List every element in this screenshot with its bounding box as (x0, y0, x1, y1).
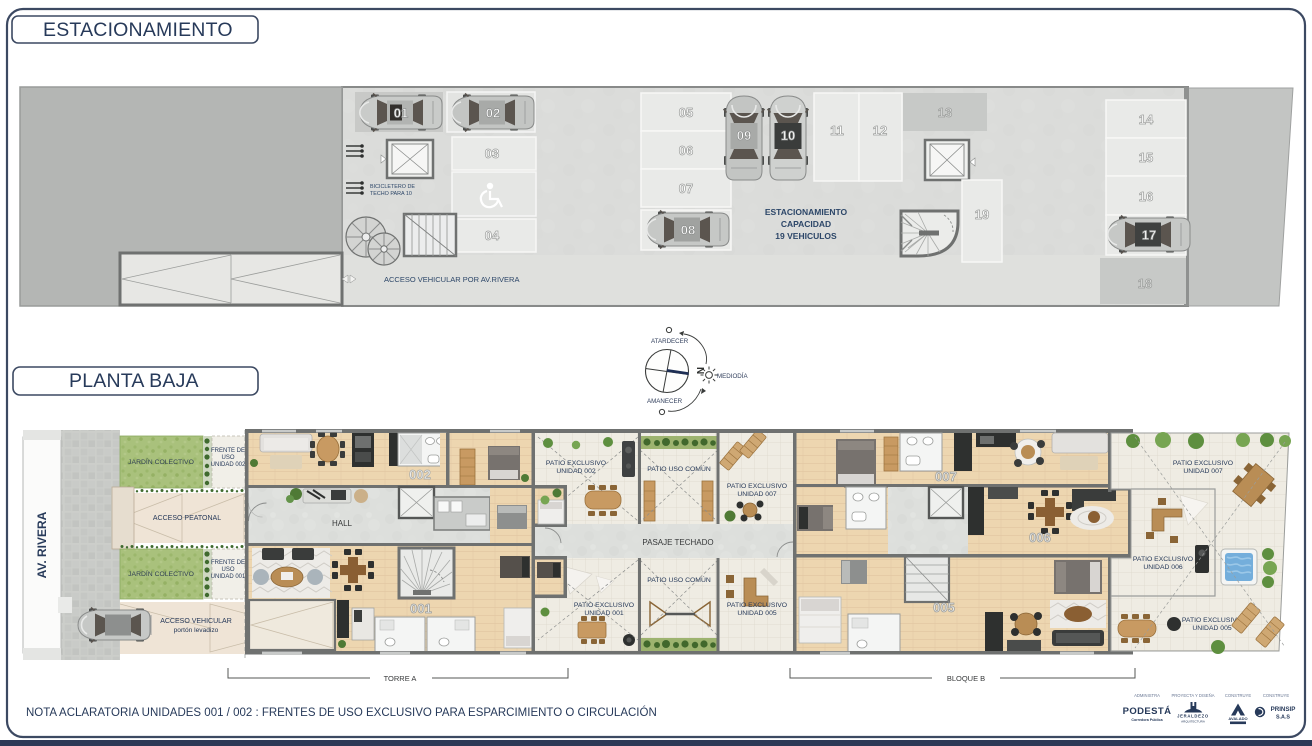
svg-text:ACCESO VEHICULAR: ACCESO VEHICULAR (160, 618, 232, 625)
svg-text:PASAJE TECHADO: PASAJE TECHADO (642, 538, 713, 547)
svg-text:19 VEHICULOS: 19 VEHICULOS (775, 231, 837, 241)
svg-text:UNIDAD 007: UNIDAD 007 (737, 491, 777, 498)
svg-text:AV. RIVERA: AV. RIVERA (35, 511, 49, 578)
svg-text:15: 15 (1139, 150, 1153, 165)
svg-text:BICICLETERO DE: BICICLETERO DE (370, 184, 415, 190)
svg-text:NOTA ACLARATORIA UNIDADES 001: NOTA ACLARATORIA UNIDADES 001 / 002 : FR… (26, 706, 657, 719)
svg-text:AMANECER: AMANECER (647, 398, 683, 405)
svg-text:ACCESO PEATONAL: ACCESO PEATONAL (153, 515, 221, 522)
svg-text:06: 06 (679, 143, 693, 158)
svg-text:PROYECTA Y DISEÑA: PROYECTA Y DISEÑA (1171, 693, 1214, 698)
svg-text:ATARDECER: ATARDECER (651, 338, 689, 345)
svg-text:JARDÍN COLECTIVO: JARDÍN COLECTIVO (128, 457, 194, 466)
svg-text:UNIDAD 007: UNIDAD 007 (1183, 468, 1223, 475)
svg-text:UNIDAD 001: UNIDAD 001 (584, 610, 624, 617)
svg-text:006: 006 (1029, 530, 1051, 545)
svg-text:07: 07 (679, 181, 693, 196)
svg-text:005: 005 (933, 600, 955, 615)
svg-text:ESTACIONAMIENTO: ESTACIONAMIENTO (765, 207, 848, 217)
svg-text:01: 01 (394, 106, 408, 121)
svg-text:001: 001 (410, 601, 432, 616)
svg-text:17: 17 (1142, 228, 1156, 243)
svg-text:16: 16 (1139, 189, 1153, 204)
svg-text:UNIDAD 001: UNIDAD 001 (211, 574, 246, 580)
svg-text:FRENTE DE: FRENTE DE (211, 560, 245, 566)
svg-text:PATIO EXCLUSIVO: PATIO EXCLUSIVO (727, 602, 787, 609)
svg-text:19: 19 (975, 207, 989, 222)
svg-text:USO: USO (221, 455, 234, 461)
svg-text:PLANTA BAJA: PLANTA BAJA (69, 370, 199, 392)
svg-text:ESTACIONAMIENTO: ESTACIONAMIENTO (43, 19, 233, 41)
svg-text:10: 10 (781, 128, 795, 143)
svg-text:portón levadizo: portón levadizo (174, 627, 219, 634)
svg-text:TORRE A: TORRE A (384, 674, 417, 683)
svg-text:FRENTE DE: FRENTE DE (211, 448, 245, 454)
svg-text:002: 002 (409, 467, 431, 482)
svg-text:ACCESO VEHICULAR POR AV.RIVERA: ACCESO VEHICULAR POR AV.RIVERA (384, 275, 519, 284)
svg-text:AVALADO: AVALADO (1228, 716, 1247, 721)
svg-text:HALL: HALL (332, 519, 353, 528)
svg-text:04: 04 (485, 228, 500, 243)
svg-text:ADMINISTRA: ADMINISTRA (1134, 693, 1160, 698)
svg-text:09: 09 (737, 128, 751, 143)
svg-text:JERALDEZO: JERALDEZO (1177, 714, 1209, 719)
svg-text:JARDÍN COLECTIVO: JARDÍN COLECTIVO (128, 569, 194, 578)
svg-text:PATIO EXCLUSIVO: PATIO EXCLUSIVO (727, 483, 787, 490)
svg-text:UNIDAD 005: UNIDAD 005 (737, 610, 777, 617)
svg-text:BLOQUE B: BLOQUE B (947, 674, 985, 683)
svg-text:N: N (694, 367, 705, 374)
svg-text:TECHO PARA 10: TECHO PARA 10 (370, 191, 412, 197)
svg-text:PODESTÁ: PODESTÁ (1123, 706, 1172, 717)
svg-text:PATIO EXCLUSIVO: PATIO EXCLUSIVO (574, 602, 634, 609)
svg-text:ARQUITECTURA: ARQUITECTURA (1181, 720, 1205, 724)
svg-text:Corredora Pública: Corredora Pública (1131, 718, 1163, 722)
svg-text:UNIDAD 002: UNIDAD 002 (211, 462, 246, 468)
svg-text:PATIO EXCLUSIVO: PATIO EXCLUSIVO (1173, 460, 1233, 467)
svg-text:18: 18 (1138, 276, 1152, 291)
svg-text:PATIO EXCLUSIVO: PATIO EXCLUSIVO (1133, 556, 1193, 563)
svg-text:11: 11 (830, 123, 844, 138)
svg-text:S.A.S: S.A.S (1276, 715, 1290, 721)
svg-text:08: 08 (681, 223, 695, 238)
svg-text:05: 05 (679, 105, 693, 120)
svg-text:03: 03 (485, 146, 499, 161)
svg-text:UNIDAD 006: UNIDAD 006 (1143, 564, 1183, 571)
svg-text:14: 14 (1139, 112, 1154, 127)
svg-text:CAPACIDAD: CAPACIDAD (781, 219, 831, 229)
svg-text:13: 13 (938, 105, 952, 120)
svg-text:CONSTRUYE: CONSTRUYE (1263, 693, 1289, 698)
svg-text:12: 12 (873, 123, 887, 138)
svg-text:PATIO EXCLUSIVO: PATIO EXCLUSIVO (546, 460, 606, 467)
svg-text:007: 007 (935, 469, 957, 484)
svg-text:CONSTRUYE: CONSTRUYE (1225, 693, 1251, 698)
svg-text:UNIDAD 005: UNIDAD 005 (1192, 625, 1232, 632)
svg-text:UNIDAD 002: UNIDAD 002 (556, 468, 596, 475)
svg-text:02: 02 (486, 106, 500, 121)
svg-text:MEDIODÍA: MEDIODÍA (717, 373, 748, 380)
svg-text:USO: USO (221, 567, 234, 573)
svg-text:PRINSIP: PRINSIP (1271, 706, 1296, 713)
